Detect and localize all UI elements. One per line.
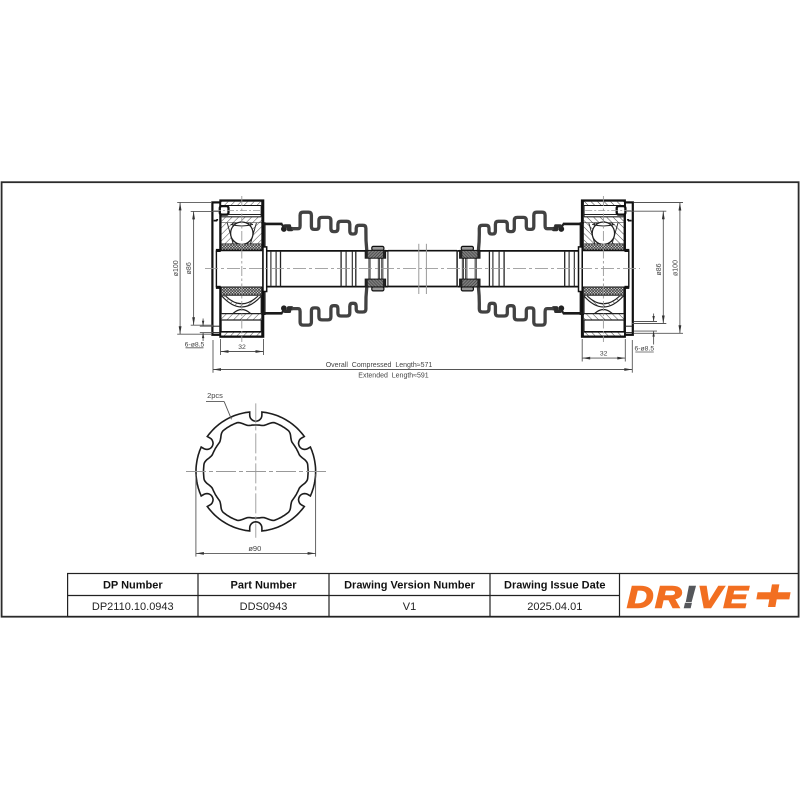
svg-text:32: 32 — [238, 344, 246, 351]
svg-text:ø86: ø86 — [656, 263, 663, 275]
svg-text:6-ø8.5: 6-ø8.5 — [185, 341, 205, 348]
svg-text:6-ø8.5: 6-ø8.5 — [634, 346, 654, 353]
svg-text:Part Number: Part Number — [230, 579, 297, 591]
svg-text:Drawing Version Number: Drawing Version Number — [344, 579, 476, 591]
svg-text:DP2110.10.0943: DP2110.10.0943 — [92, 601, 174, 613]
svg-text:2pcs: 2pcs — [207, 391, 223, 400]
svg-text:DDS0943: DDS0943 — [240, 601, 288, 613]
svg-text:32: 32 — [600, 351, 608, 358]
svg-text:Drawing Issue Date: Drawing Issue Date — [504, 579, 605, 591]
svg-text:DP Number: DP Number — [103, 579, 163, 591]
svg-text:ø86: ø86 — [186, 262, 193, 274]
svg-text:V1: V1 — [403, 601, 416, 613]
svg-text:ø100: ø100 — [673, 260, 680, 276]
svg-text:Overall Compressed Length≈57: Overall Compressed Length≈571 — [326, 362, 433, 369]
svg-text:2025.04.01: 2025.04.01 — [527, 601, 582, 613]
svg-text:Extended Length≈591: Extended Length≈591 — [358, 373, 429, 380]
svg-text:ø90: ø90 — [248, 544, 261, 553]
svg-text:ø100: ø100 — [173, 260, 180, 276]
svg-text:DR!VE: DR!VE — [627, 580, 750, 615]
